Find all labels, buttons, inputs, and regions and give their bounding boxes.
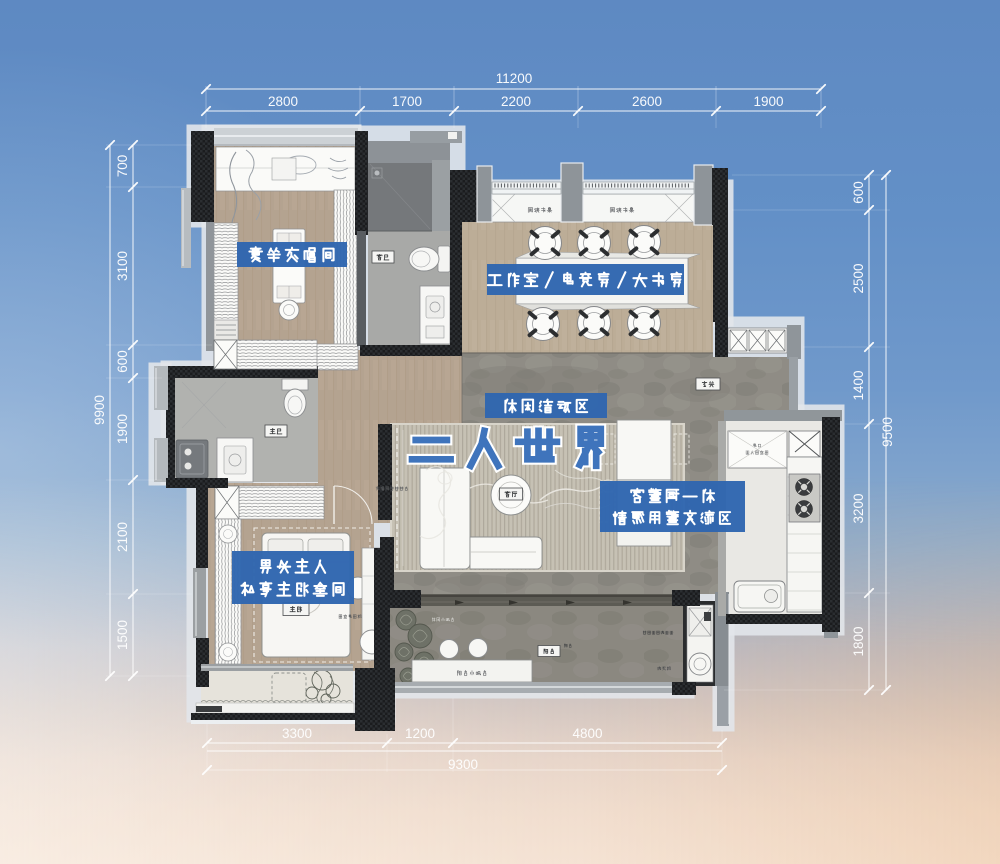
svg-text:1200: 1200 <box>405 726 435 741</box>
svg-text:2100: 2100 <box>115 522 130 552</box>
svg-text:2800: 2800 <box>268 94 298 109</box>
svg-text:600: 600 <box>851 181 866 204</box>
svg-text:2200: 2200 <box>501 94 531 109</box>
svg-text:2500: 2500 <box>851 263 866 293</box>
svg-text:1900: 1900 <box>115 414 130 444</box>
svg-text:3300: 3300 <box>282 726 312 741</box>
svg-text:1900: 1900 <box>753 94 783 109</box>
svg-text:1400: 1400 <box>851 370 866 400</box>
svg-text:11200: 11200 <box>496 71 533 86</box>
svg-text:9900: 9900 <box>92 395 107 425</box>
svg-text:1800: 1800 <box>851 626 866 656</box>
svg-text:4800: 4800 <box>572 726 602 741</box>
svg-text:2600: 2600 <box>632 94 662 109</box>
svg-text:700: 700 <box>115 155 130 178</box>
svg-text:1500: 1500 <box>115 620 130 650</box>
svg-text:600: 600 <box>115 350 130 373</box>
svg-text:3100: 3100 <box>115 251 130 281</box>
svg-text:9300: 9300 <box>448 757 478 772</box>
svg-text:9500: 9500 <box>880 417 895 447</box>
svg-text:1700: 1700 <box>392 94 422 109</box>
svg-text:3200: 3200 <box>851 493 866 523</box>
